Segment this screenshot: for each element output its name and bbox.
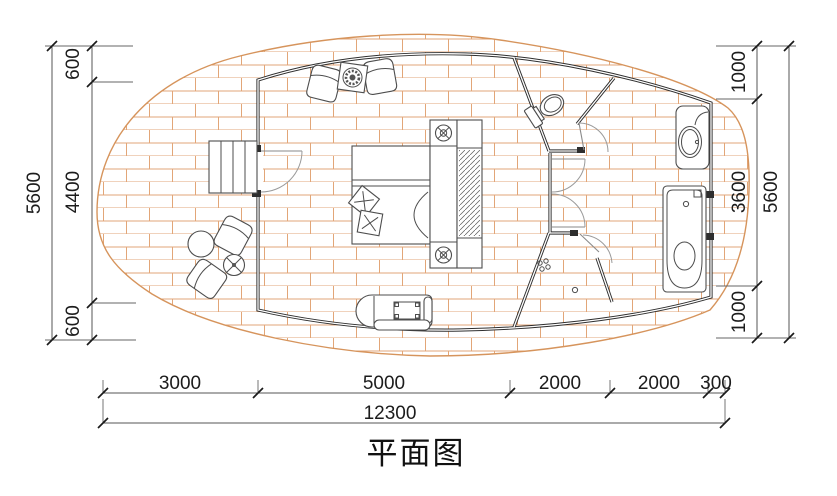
dim-bottom-seg-3: 2000 <box>539 373 581 394</box>
wall-joint <box>706 233 714 240</box>
dim-right-seg-mid: 3600 <box>729 171 750 213</box>
floor-plan-canvas: 5600 600 4400 600 1000 3600 1000 5600 30… <box>0 0 837 496</box>
door-jamb <box>570 230 578 236</box>
dim-left-total: 5600 <box>24 172 45 214</box>
wardrobe-hatch <box>459 150 480 236</box>
wardrobe <box>457 120 482 268</box>
dim-left-seg-mid: 4400 <box>63 171 84 213</box>
bed-lamp-1 <box>436 125 452 141</box>
dim-right-seg-top: 1000 <box>729 51 750 93</box>
bed-lamp-2 <box>436 247 452 263</box>
stove-table <box>337 62 367 92</box>
outdoor-stool <box>224 255 245 276</box>
bench <box>374 320 430 330</box>
dim-bottom-seg-5: 300 <box>700 373 732 394</box>
sink-vanity <box>676 106 709 169</box>
dimension-lines-bottom: 3000 5000 2000 2000 300 12300 <box>98 373 732 428</box>
entry-steps <box>209 141 257 193</box>
dim-bottom-seg-2: 5000 <box>363 373 405 394</box>
tv-cabinet <box>356 295 432 330</box>
dim-right-seg-bottom: 1000 <box>729 291 750 333</box>
wall-joint <box>706 191 714 198</box>
floor-plan-page: 5600 600 4400 600 1000 3600 1000 5600 30… <box>0 0 837 496</box>
bathtub <box>663 186 706 292</box>
dim-left-seg-bottom: 600 <box>63 305 84 337</box>
dim-bottom-total: 12300 <box>364 403 417 424</box>
dim-bottom-seg-1: 3000 <box>159 373 201 394</box>
tv-screen <box>424 297 432 323</box>
dim-right-total: 5600 <box>761 171 782 213</box>
dim-bottom-seg-4: 2000 <box>638 373 680 394</box>
dim-left-seg-top: 600 <box>63 48 84 80</box>
pillow <box>357 210 382 235</box>
outdoor-table <box>188 231 214 257</box>
plan-title: 平面图 <box>367 436 466 471</box>
nightstand-column <box>430 120 457 268</box>
lounge-chair-2 <box>362 58 397 96</box>
